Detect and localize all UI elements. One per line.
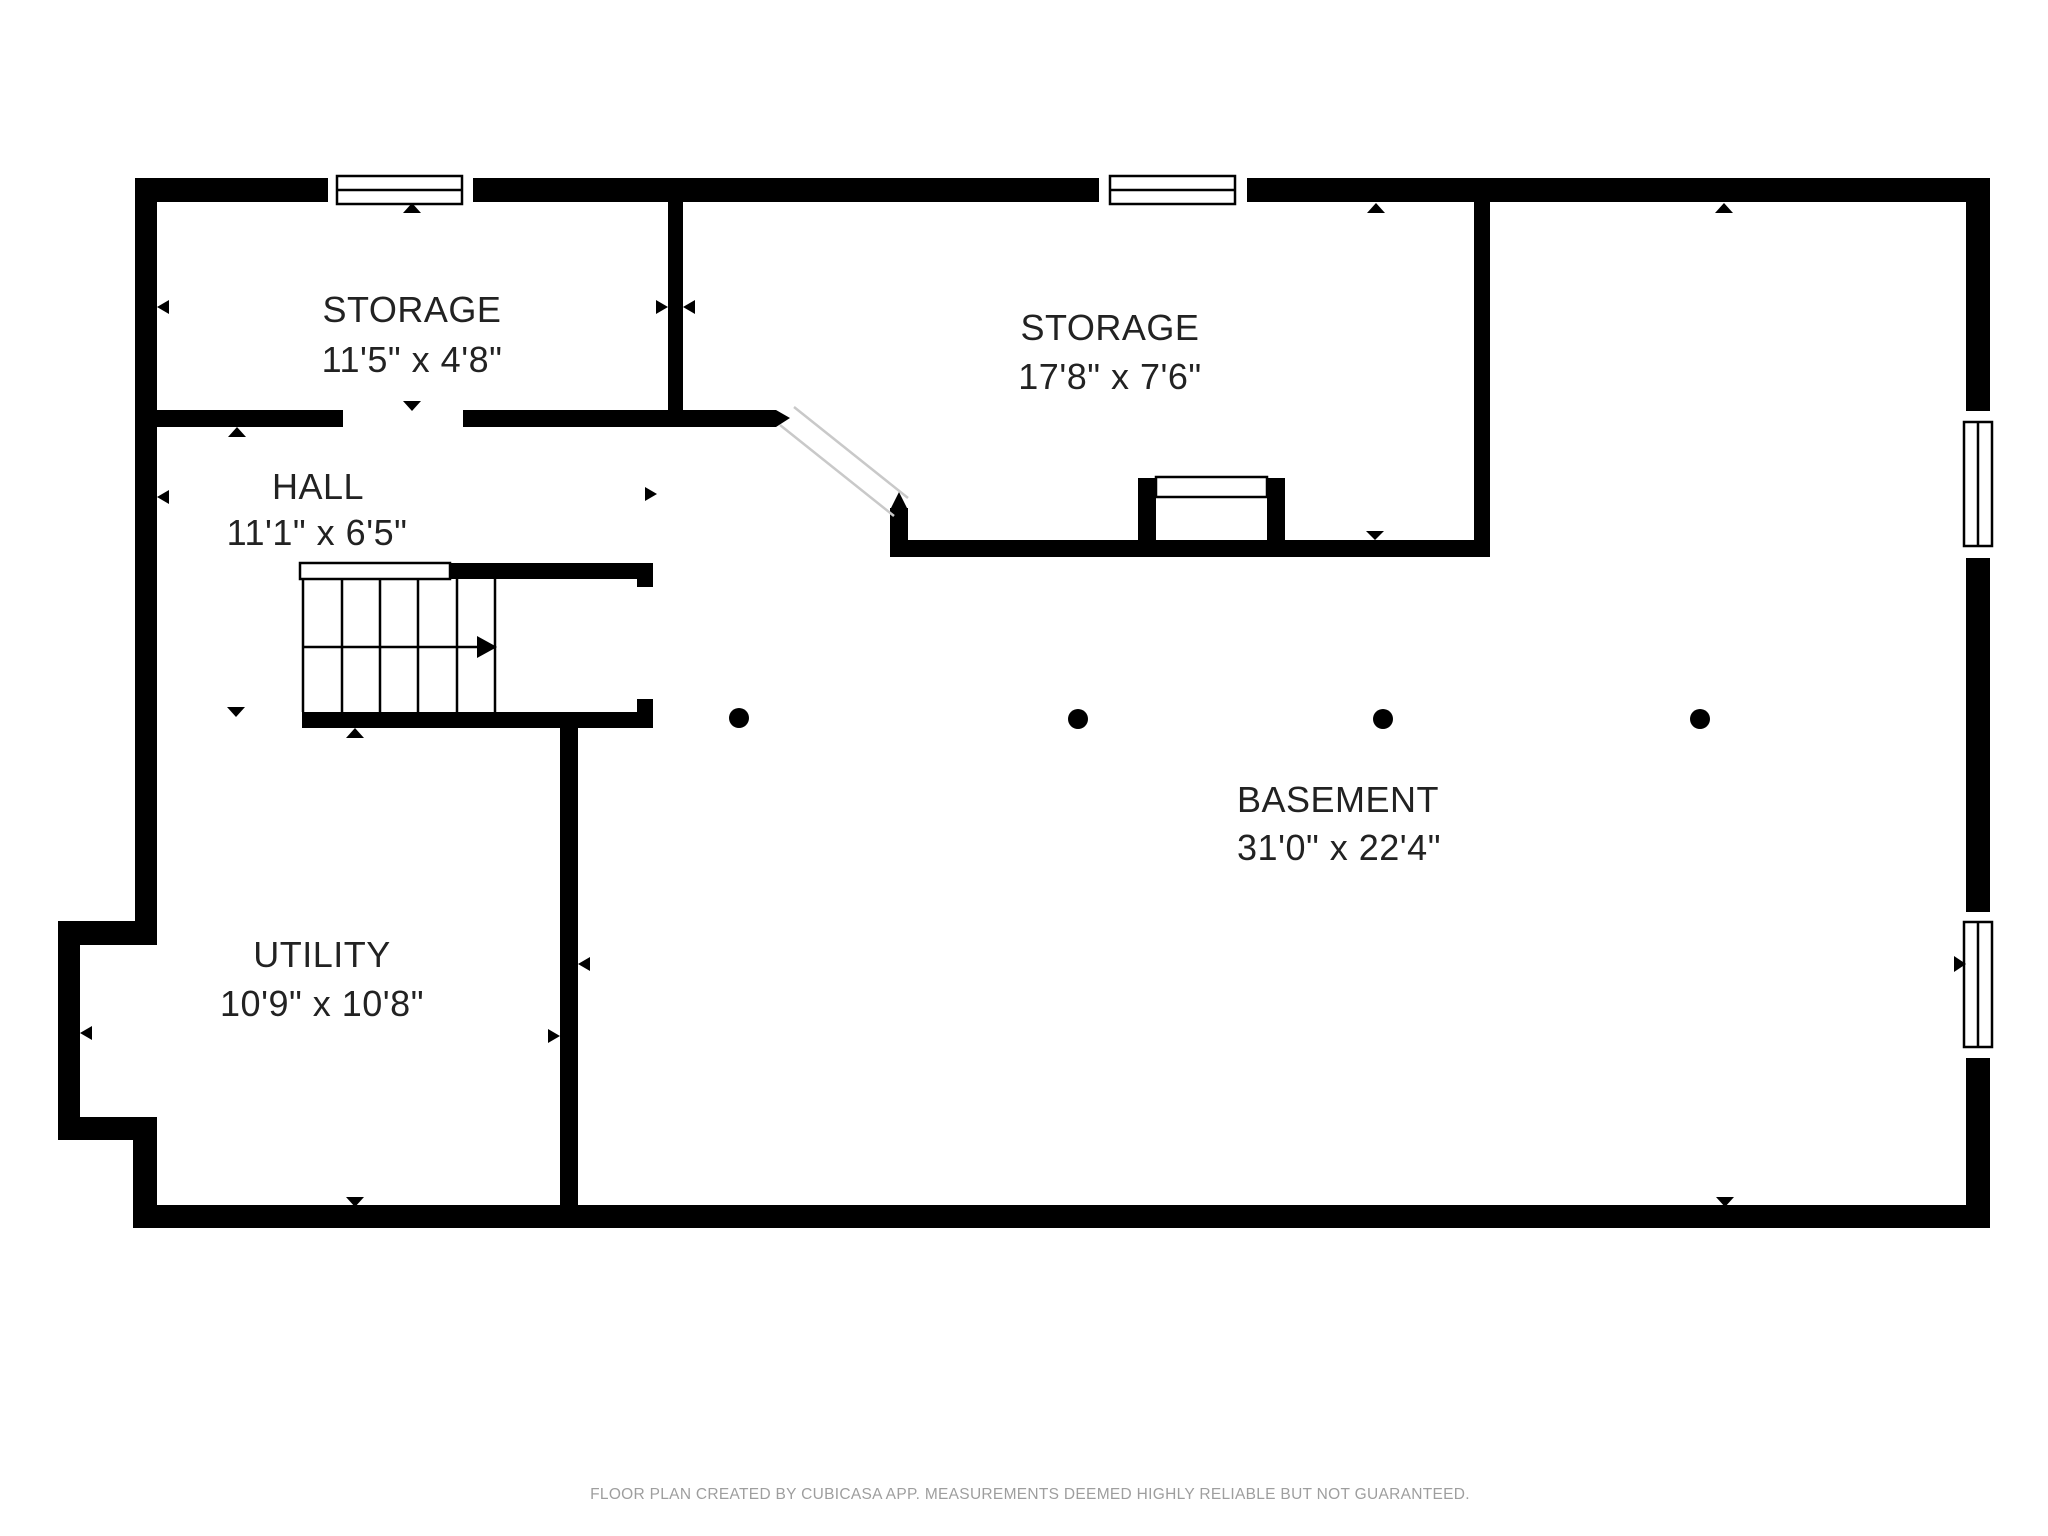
stair-direction-arrow-icon <box>303 636 497 658</box>
direction-arrow-icon <box>80 1026 92 1040</box>
direction-arrow-icon <box>1367 203 1385 213</box>
room-label-storage-small: STORAGE <box>323 289 502 330</box>
direction-arrow-icon <box>656 300 668 314</box>
direction-arrow-icon <box>578 957 590 971</box>
stairs-icon <box>300 563 497 712</box>
direction-arrow-icon <box>228 427 246 437</box>
room-label-storage-large: STORAGE <box>1021 307 1200 348</box>
column-dot-icon <box>1068 709 1088 729</box>
direction-arrow-icon <box>403 401 421 411</box>
floor-plan-page: STORAGE 11'5" x 4'8" STORAGE 17'8" x 7'6… <box>0 0 2048 1536</box>
direction-arrow-icon <box>1715 203 1733 213</box>
window-icon-top-left <box>328 176 473 204</box>
room-dims-utility: 10'9" x 10'8" <box>220 983 424 1024</box>
room-dims-storage-small: 11'5" x 4'8" <box>322 339 503 380</box>
room-label-hall: HALL <box>272 466 364 507</box>
room-dims-hall: 11'1" x 6'5" <box>227 512 408 553</box>
direction-arrow-icon <box>548 1029 560 1043</box>
column-dot-icon <box>1690 709 1710 729</box>
room-label-basement: BASEMENT <box>1237 779 1439 820</box>
window-icon-right-lower <box>1964 912 1992 1058</box>
door-swing-icon <box>780 407 908 516</box>
column-dot-icon <box>729 708 749 728</box>
column-dot-icon <box>1373 709 1393 729</box>
window-icon-top-middle <box>1099 176 1247 204</box>
window-icon-right-upper <box>1964 411 1992 558</box>
direction-arrow-icon <box>645 487 657 501</box>
niche-window-icon <box>1156 477 1267 497</box>
floor-plan-canvas: STORAGE 11'5" x 4'8" STORAGE 17'8" x 7'6… <box>0 0 2048 1536</box>
room-dims-basement: 31'0" x 22'4" <box>1237 827 1441 868</box>
direction-arrow-icon <box>346 728 364 738</box>
room-label-utility: UTILITY <box>253 934 391 975</box>
direction-arrow-icon <box>157 300 169 314</box>
direction-arrow-icon <box>227 707 245 717</box>
footer-disclaimer: FLOOR PLAN CREATED BY CUBICASA APP. MEAS… <box>590 1486 1470 1503</box>
direction-arrow-icon <box>1366 531 1384 540</box>
direction-arrow-icon <box>683 300 695 314</box>
column-dots <box>729 708 1710 729</box>
direction-arrow-icon <box>157 490 169 504</box>
room-dims-storage-large: 17'8" x 7'6" <box>1018 356 1201 397</box>
